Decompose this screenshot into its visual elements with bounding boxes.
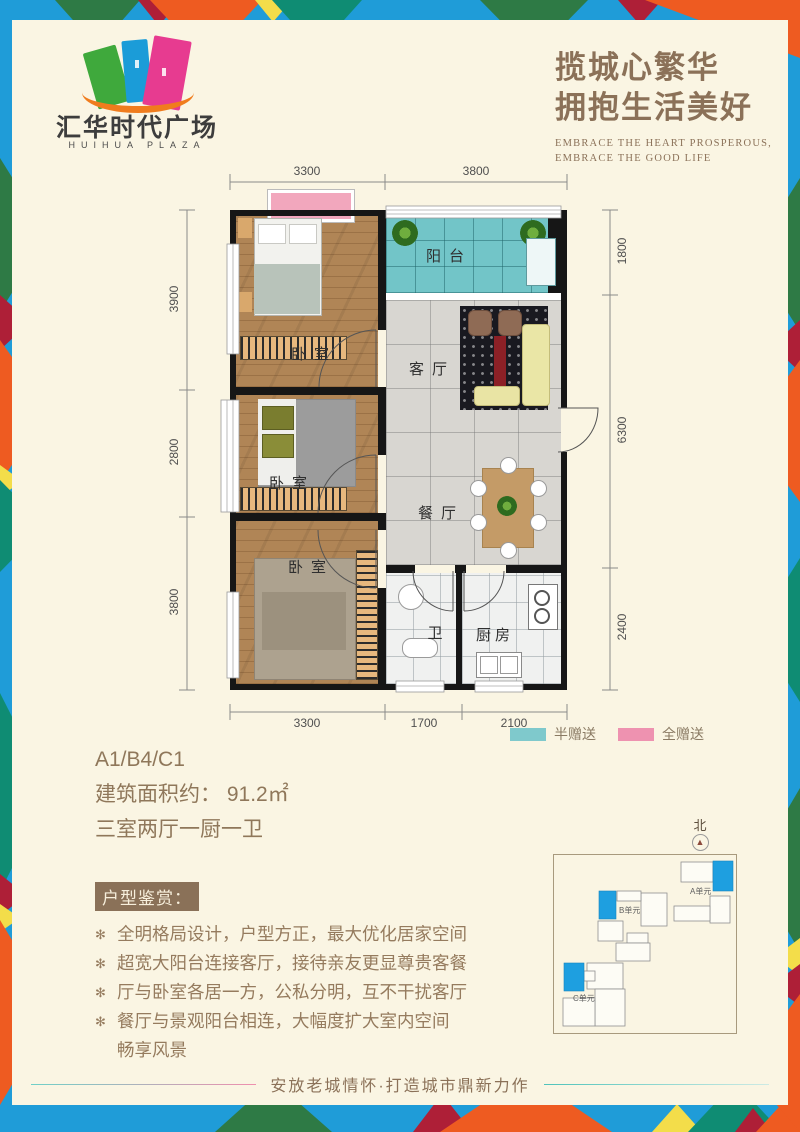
sink (398, 584, 424, 610)
sink-basin (480, 656, 498, 674)
wall (230, 210, 236, 690)
dim-top-1: 3300 (267, 164, 347, 178)
wall (236, 513, 378, 521)
room-label-living: 客厅 (388, 358, 468, 379)
full-gift-label: 全赠送 (662, 724, 704, 744)
wall (378, 216, 386, 684)
armchair (468, 310, 492, 336)
pillow (258, 224, 286, 244)
appreciation-block: 户型鉴赏： ✻全明格局设计，户型方正，最大优化居家空间 ✻超宽大阳台连接客厅，接… (95, 882, 535, 1065)
room-label-balcony: 阳台 (405, 245, 485, 266)
unit-c-label: C单元 (573, 993, 595, 1003)
content-panel: 汇华时代广场 HUIHUA PLAZA 揽城心繁华 拥抱生活美好 EMBRACE… (12, 20, 788, 1105)
dim-bottom-1: 3300 (267, 716, 347, 730)
room-label-bedroom2: 卧室 (248, 472, 328, 493)
chair (500, 457, 517, 474)
unit-a-label: A单元 (690, 886, 711, 896)
chair (470, 480, 487, 497)
footer: 安放老城情怀·打造城市鼎新力作 (12, 1072, 788, 1096)
chair (530, 480, 547, 497)
door-opening (378, 530, 386, 588)
dim-bottom-3: 2100 (474, 716, 554, 730)
wall (230, 684, 567, 690)
room-label-dining: 餐厅 (397, 502, 477, 523)
unit-c-block (564, 963, 584, 991)
slogan-block: 揽城心繁华 拥抱生活美好 EMBRACE THE HEART PROSPEROU… (555, 48, 780, 166)
unit-code: A1/B4/C1 (95, 742, 289, 777)
site-map: 北 ▲ (553, 818, 739, 1039)
nightstand (238, 292, 252, 312)
entry-opening (561, 408, 567, 452)
door-opening (378, 455, 386, 513)
north-label: 北 (683, 818, 717, 833)
burner (534, 608, 550, 624)
slogan-line2: 拥抱生活美好 (555, 88, 780, 128)
north-arrow-icon: ▲ (692, 834, 709, 851)
dim-left-3: 3800 (167, 562, 181, 642)
wall (230, 210, 567, 216)
logo-swoosh-icon (82, 72, 194, 113)
appreciation-item: ✻厅与卧室各居一方，公私分明，互不干扰客厅 (95, 978, 535, 1007)
appreciation-item: ✻超宽大阳台连接客厅，接待亲友更显尊贵客餐 (95, 949, 535, 978)
dim-top-2: 3800 (436, 164, 516, 178)
unit-area: 建筑面积约： 91.2㎡ (95, 777, 289, 812)
unit-info: A1/B4/C1 建筑面积约： 91.2㎡ 三室两厅一厨一卫 (95, 742, 289, 847)
brand-subtitle: HUIHUA PLAZA (42, 140, 232, 150)
door-opening (466, 565, 506, 573)
flower-bullet-icon: ✻ (95, 978, 106, 1007)
coffee-table (474, 386, 520, 406)
full-gift-swatch (618, 728, 654, 741)
pillow (289, 224, 317, 244)
plant-icon (497, 496, 517, 516)
floor-plan: 卧室 卧室 卧室 阳台 客厅 餐厅 卫 厨房 3300 3800 3300 17… (170, 160, 650, 740)
dim-right-3: 2400 (615, 587, 629, 667)
door-opening (378, 330, 386, 387)
brand-logo: 汇华时代广场 HUIHUA PLAZA (42, 20, 227, 170)
north-indicator: 北 ▲ (683, 818, 717, 851)
nightstand (238, 218, 252, 238)
pillow (262, 406, 294, 430)
blanket (262, 592, 346, 650)
plant-icon (392, 220, 418, 246)
logo-window-icon (135, 60, 139, 68)
wardrobe (356, 550, 378, 680)
dim-left-2: 2800 (167, 412, 181, 492)
unit-a-block (713, 861, 733, 891)
blanket (254, 264, 320, 314)
chair (500, 542, 517, 559)
dim-right-2: 6300 (615, 390, 629, 470)
appreciation-list: ✻全明格局设计，户型方正，最大优化居家空间 ✻超宽大阳台连接客厅，接待亲友更显尊… (95, 920, 535, 1065)
room-label-bedroom3: 卧室 (267, 556, 347, 577)
sink-basin (500, 656, 518, 674)
room-label-kitchen: 厨房 (458, 624, 528, 645)
appreciation-item: ✻全明格局设计，户型方正，最大优化居家空间 (95, 920, 535, 949)
footer-divider-left (31, 1084, 256, 1085)
sofa (522, 324, 550, 406)
flower-bullet-icon: ✻ (95, 1007, 106, 1036)
brand-title: 汇华时代广场 (42, 108, 232, 144)
dim-left-1: 3900 (167, 259, 181, 339)
pillow (262, 434, 294, 458)
washing-machine (526, 238, 556, 286)
footer-divider-right (544, 1084, 769, 1085)
wall (236, 387, 378, 395)
room-label-bedroom1: 卧室 (270, 343, 350, 364)
flower-bullet-icon: ✻ (95, 949, 106, 978)
unit-b-label: B单元 (619, 905, 640, 915)
armchair (498, 310, 522, 336)
dim-right-1: 1800 (615, 211, 629, 291)
tv-cabinet (494, 336, 506, 392)
site-map-drawing: A单元 B单元 C单元 (553, 854, 737, 1034)
chair (530, 514, 547, 531)
half-gift-label: 半赠送 (554, 724, 596, 744)
dim-bottom-2: 1700 (384, 716, 464, 730)
footer-slogan: 安放老城情怀·打造城市鼎新力作 (270, 1072, 529, 1096)
unit-rooms: 三室两厅一厨一卫 (95, 812, 289, 847)
room-label-bath: 卫 (415, 622, 455, 643)
slogan-en-line1: EMBRACE THE HEART PROSPEROUS, (555, 136, 780, 151)
appreciation-item: ✻餐厅与景观阳台相连，大幅度扩大室内空间 畅享风景 (95, 1007, 535, 1065)
burner (534, 590, 550, 606)
slogan-line1: 揽城心繁华 (555, 48, 780, 88)
appreciation-title: 户型鉴赏： (95, 882, 199, 911)
flower-bullet-icon: ✻ (95, 920, 106, 949)
unit-b-block (599, 891, 616, 919)
door-opening (415, 565, 455, 573)
